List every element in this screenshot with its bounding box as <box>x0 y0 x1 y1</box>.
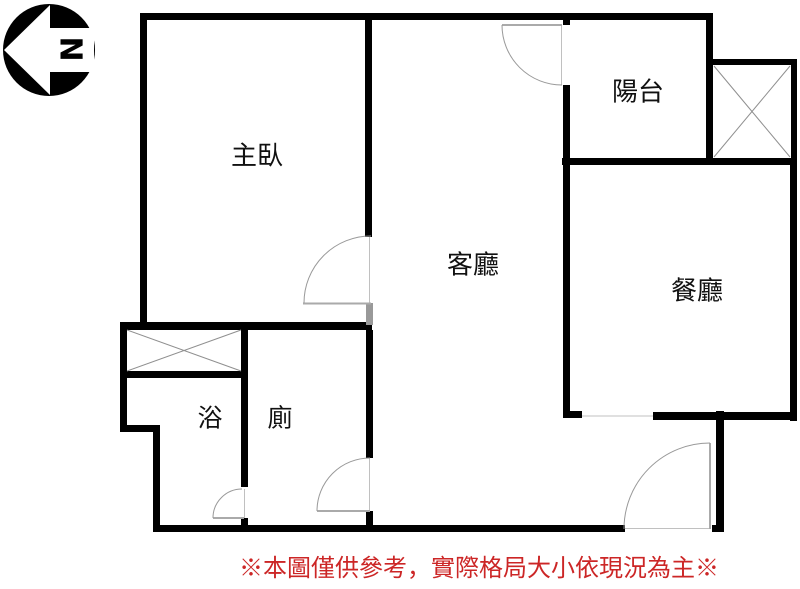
room-label-living-room: 客廳 <box>447 251 499 280</box>
wall-bedroom-right <box>365 13 372 237</box>
room-label-dining-room: 餐廳 <box>671 277 723 306</box>
wall-bottom-main <box>153 525 625 532</box>
north-compass-icon: N <box>3 4 95 96</box>
wall-bath-divider-nub <box>241 518 248 532</box>
room-label-bath: 浴 <box>197 405 222 433</box>
wall-shaft-top <box>713 59 797 65</box>
disclaimer-text: ※本圖僅供參考，實際格局大小依現況為主※ <box>239 555 719 582</box>
wall-living-dining-divider <box>563 85 570 418</box>
wall-entry-right <box>716 411 724 532</box>
wall-bedroom-door-jamb-gray <box>366 303 373 325</box>
north-label: N <box>53 36 88 61</box>
wall-bedroom-bottom <box>120 322 372 330</box>
wall-bath-toilet-divider <box>241 330 248 487</box>
floor-plan-screenshot: N <box>0 0 800 589</box>
wall-balcony-bottom <box>562 158 797 165</box>
wall-toilet-right <box>366 330 373 458</box>
room-label-balcony: 陽台 <box>612 78 664 107</box>
room-label-toilet: 廁 <box>267 405 292 433</box>
wall-dining-bottom-right <box>653 412 797 420</box>
wall-bath-shaft-bottom <box>120 371 248 378</box>
room-label-master-bedroom: 主臥 <box>231 142 283 171</box>
wall-bottom-right-piece <box>712 525 724 532</box>
wall-dining-right <box>790 158 797 421</box>
wall-shaft-right <box>791 59 797 165</box>
wall-left-upper <box>140 13 147 330</box>
wall-top <box>140 13 713 20</box>
wall-left-lower <box>153 429 160 532</box>
wall-balcony-right <box>706 13 713 165</box>
floor-plan-canvas: N <box>0 0 800 589</box>
wall-living-divider-nub <box>563 13 570 25</box>
wall-toilet-right-nub <box>366 511 373 532</box>
